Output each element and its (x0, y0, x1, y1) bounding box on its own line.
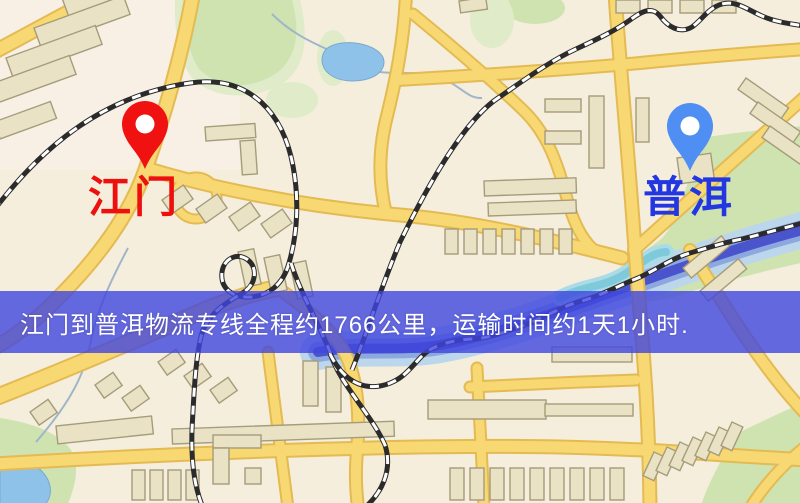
origin-city-label: 江门 (88, 177, 180, 220)
red-pin-hole (136, 115, 155, 134)
destination-city-label: 普洱 (643, 177, 735, 220)
blue-pin-hole (681, 117, 700, 136)
map-artwork (0, 0, 800, 503)
route-info-text: 江门到普洱物流专线全程约1766公里，运输时间约1天1小时. (20, 305, 689, 340)
map-canvas: 江门 普洱 江门到普洱物流专线全程约1766公里，运输时间约1天1小时. (0, 0, 800, 503)
route-info-banner: 江门到普洱物流专线全程约1766公里，运输时间约1天1小时. (0, 291, 800, 353)
